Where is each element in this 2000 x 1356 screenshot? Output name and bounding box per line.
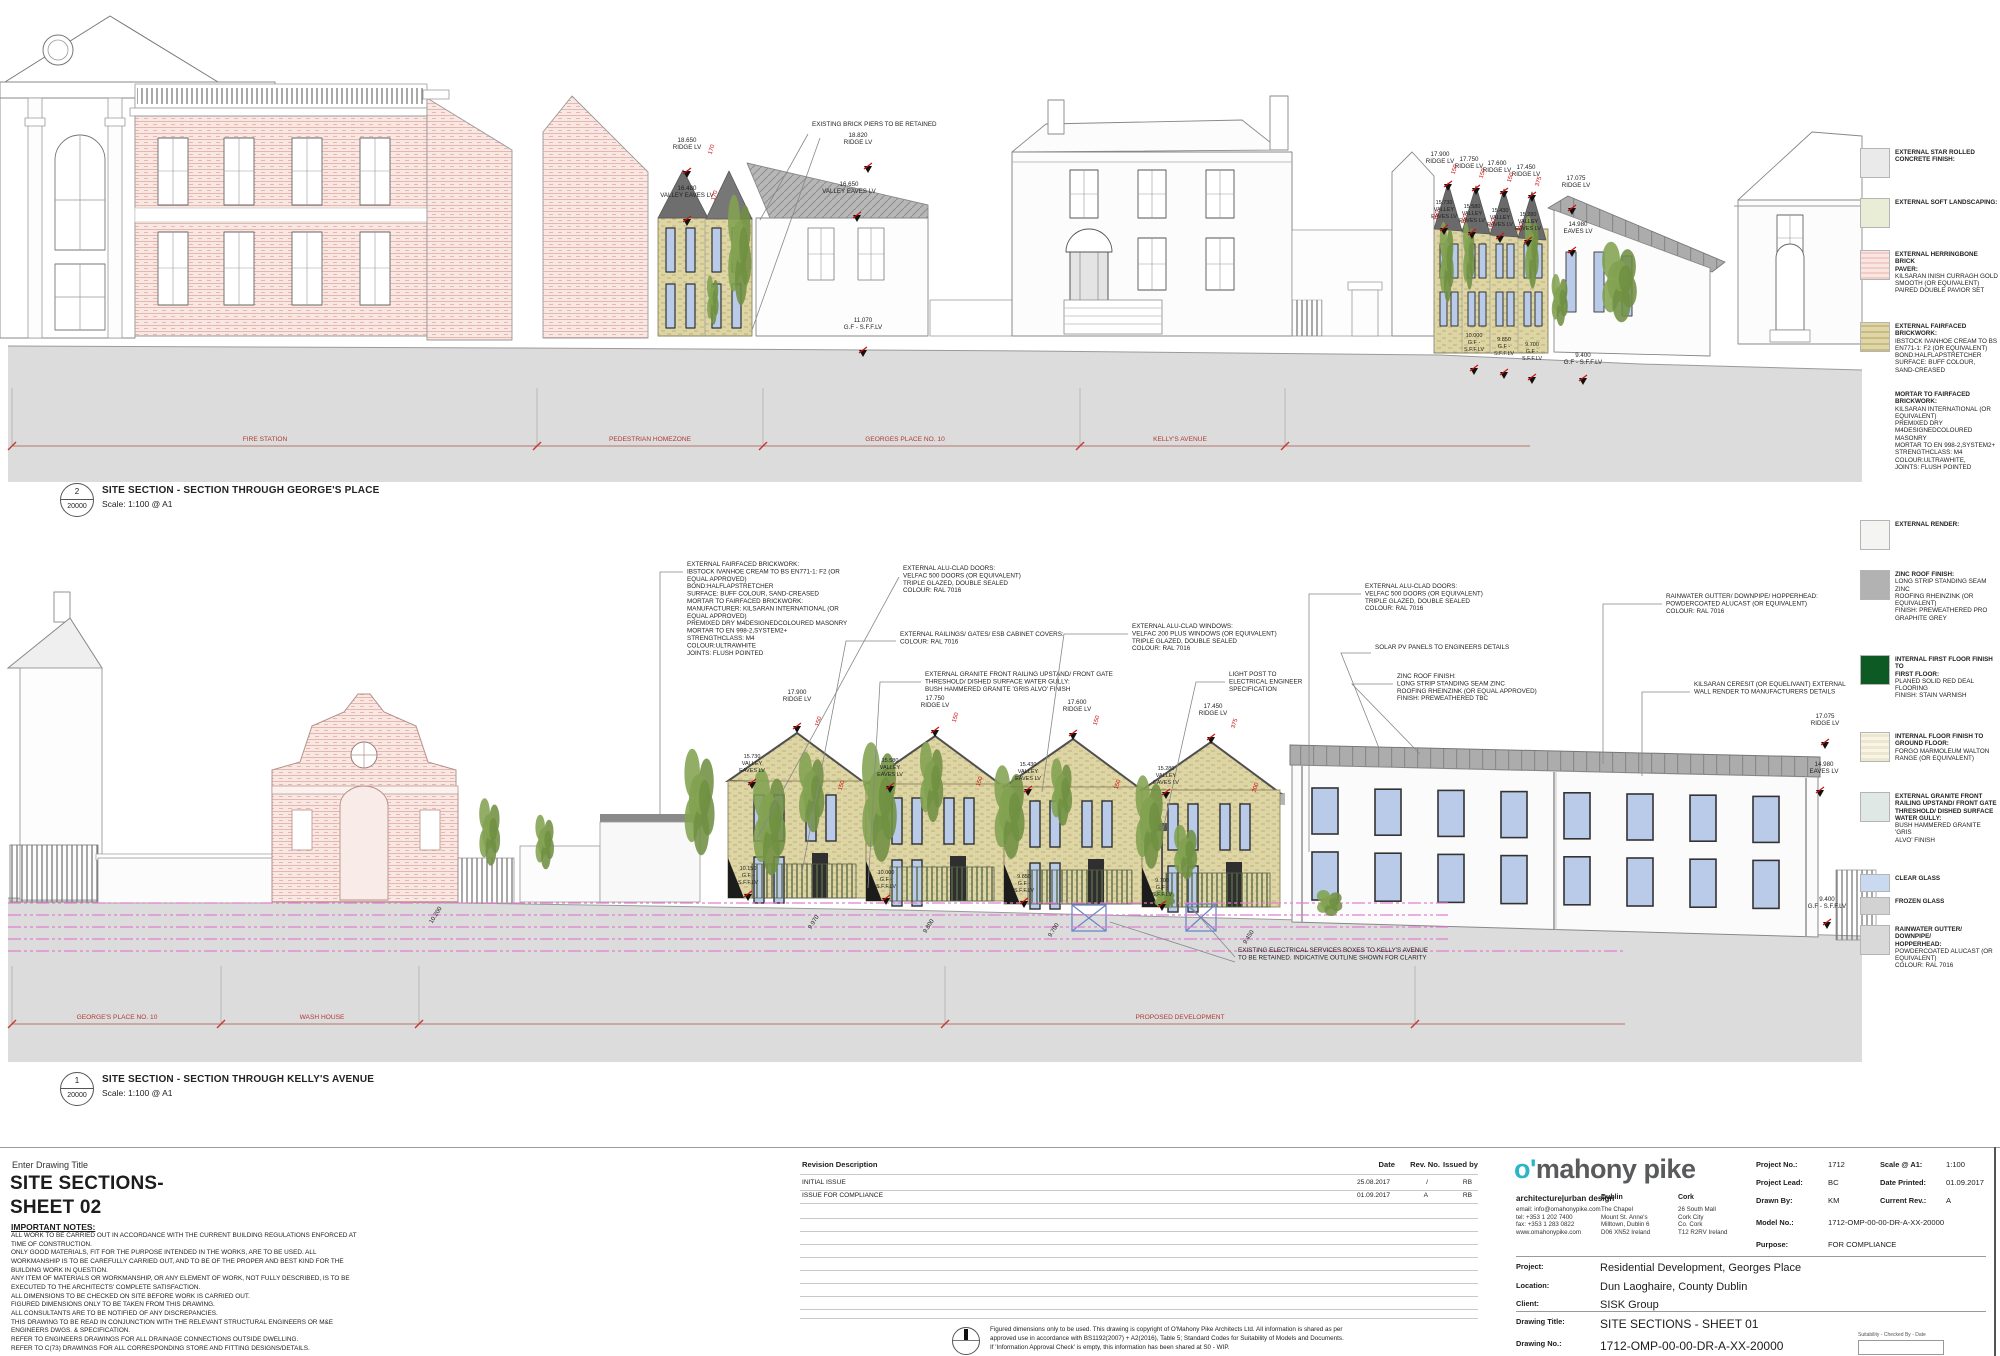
revision-rule [800,1203,1478,1204]
legend-text: EXTERNAL FAIRFACEDBRICKWORK:IBSTOCK IVAN… [1895,323,1999,374]
zone-label: GEORGE'S PLACE NO. 10 [77,1014,158,1021]
level-arrow [1444,184,1452,191]
field-label: Current Rev.: [1880,1196,1926,1205]
cork-office-address: 26 South MallCork CityCo. CorkT12 R2RV I… [1678,1206,1727,1236]
white-terrace-block [1290,745,1820,937]
field-value: Dun Laoghaire, County Dublin [1600,1281,1747,1293]
address-line: T12 R2RV Ireland [1678,1229,1727,1237]
copyright-disclaimer: Figured dimensions only to be used. This… [990,1326,1344,1352]
titleblock-rule [1516,1256,1986,1257]
legend-swatch-brickpink [1860,250,1890,280]
omahony-pike-logo: o'mahony pike [1514,1154,1695,1185]
red-dimension: 150 [1093,714,1102,726]
legend-text: ZINC ROOF FINISH:LONG STRIP STANDING SEA… [1895,571,1999,622]
field-label: Date Printed: [1880,1178,1926,1187]
red-dimension: 375 [1231,717,1240,729]
revision-rule [800,1318,1478,1319]
revision-rule [800,1231,1478,1232]
legend-text: EXTERNAL STAR ROLLEDCONCRETE FINISH: [1895,149,1999,164]
field-value: 1712 [1828,1160,1845,1169]
field-label: Scale @ A1: [1880,1160,1922,1169]
revision-cell: RB [1463,1192,1472,1199]
legend-swatch-render [1860,520,1890,550]
revision-cell: RB [1463,1179,1472,1186]
revision-rule [800,1174,1478,1175]
level-label: 17.750RIDGE LV [921,695,950,709]
disclaimer-line: approved use in accordance with BS1192(2… [990,1335,1344,1344]
note-line: WORKMANSHIP IS TO BE CAREFULLY CARRIED O… [11,1258,357,1267]
address-line: The Chapel [1601,1206,1650,1214]
section-number: 2 [61,484,93,500]
red-dimension: 170 [708,143,717,155]
level-label: 17.600RIDGE LV [1483,160,1512,174]
white-gable [1392,152,1434,336]
legend-text: RAINWATER GUTTER/ DOWNPIPE/HOPPERHEAD:PO… [1895,926,1999,970]
section-sheet-number: 20000 [61,500,93,515]
existing-gable-wall [543,96,648,338]
field-label: Client: [1516,1299,1539,1308]
field-value: BC [1828,1178,1839,1187]
note-line: BUILDING WORK IN QUESTION. [11,1267,357,1276]
firm-tagline: architecture|urban design [1516,1194,1614,1203]
enter-drawing-title: Enter Drawing Title [12,1160,88,1170]
zinc-house-top [1548,196,1725,356]
annotation-note: EXTERNAL ALU-CLAD DOORS:VELFAC 500 DOORS… [1365,583,1483,612]
section-1-caption: 1 20000 SITE SECTION - SECTION THROUGH K… [60,1072,374,1106]
revision-cell: ISSUE FOR COMPLIANCE [802,1192,883,1199]
zone-label: GEORGES PLACE NO. 10 [865,436,945,443]
level-label: 14.980EAVES LV [1809,761,1839,775]
field-value: KM [1828,1196,1839,1205]
garden-wall [930,300,1012,336]
important-notes-heading: IMPORTANT NOTES: [11,1222,95,1232]
note-line: ALL CONSULTANTS ARE TO BE NOTIFIED OF AN… [11,1310,357,1319]
address-line: fax: +353 1 283 0822 [1516,1221,1601,1229]
revision-rule [800,1257,1478,1258]
boundary-wall [520,846,600,902]
field-label: Project Lead: [1756,1178,1803,1187]
level-label: 17.750RIDGE LV [1455,156,1484,170]
revision-rule [800,1190,1478,1191]
revision-cell: A [1424,1192,1428,1199]
note-line: ALL DIMENSIONS TO BE CHECKED ON SITE BEF… [11,1293,357,1302]
level-arrow [931,730,939,737]
legend-swatch-landscaping [1860,198,1890,228]
legend-swatch-bricktan [1860,322,1890,352]
note-line: ONLY GOOD MATERIALS, FIT FOR THE PURPOSE… [11,1249,357,1258]
dublin-office-address: The ChapelMount St. Anne'sMilltown, Dubl… [1601,1206,1650,1236]
section-2-caption: 2 20000 SITE SECTION - SECTION THROUGH G… [60,483,380,517]
note-line: FIGURED DIMENSIONS ONLY TO BE TAKEN FROM… [11,1301,357,1310]
field-value: FOR COMPLIANCE [1828,1240,1896,1249]
level-label: 9.400G.F - S.F.F.LV [1564,352,1603,366]
legend-text: MORTAR TO FAIRFACEDBRICKWORK:KILSARAN IN… [1895,391,1999,471]
legend-text: INTERNAL FIRST FLOOR FINISH TOFIRST FLOO… [1895,656,1999,700]
north-symbol-line [953,1340,979,1341]
level-label: 17.450RIDGE LV [1199,703,1228,717]
section-number: 1 [61,1073,93,1089]
important-notes: ALL WORK TO BE CARRIED OUT IN ACCORDANCE… [11,1232,357,1353]
revision-cell: Rev. No. [1410,1160,1440,1169]
level-arrow [882,898,890,905]
field-label: Project No.: [1756,1160,1797,1169]
field-value: A [1946,1196,1951,1205]
revision-cell: INITIAL ISSUE [802,1179,846,1186]
revision-rule [800,1283,1478,1284]
leader-line [1341,653,1379,748]
sheet-title: SITE SECTIONS-SHEET 02 [10,1172,164,1220]
suitability-label: Suitability - Checked By - Date [1858,1332,1926,1338]
address-line: tel: +353 1 202 7400 [1516,1214,1601,1222]
leader-line [1603,604,1662,764]
sections-drawing: 18.650RIDGE LV16.480VALLEY EAVES LV18.82… [0,0,2000,1356]
sheet-edge [1994,1147,1996,1356]
level-label: 18.820RIDGE LV [844,132,873,146]
address-line: D06 XN52 Ireland [1601,1229,1650,1237]
level-arrow [1823,922,1831,929]
red-dimension: 150 [952,711,961,723]
left-existing-house [8,592,274,903]
disclaimer-line: If 'Information Approval Check' is empty… [990,1344,1344,1353]
legend-swatch-gutter [1860,925,1890,955]
zone-label: WASH HOUSE [300,1014,345,1021]
zone-label: PEDESTRIAN HOMEZONE [609,436,692,443]
revision-rule [800,1218,1478,1219]
field-value: 01.09.2017 [1946,1178,1984,1187]
field-value: 1:100 [1946,1160,1965,1169]
section-1-drawing [8,592,1876,1062]
georgian-house-no10 [1012,96,1392,336]
annotation-note: EXISTING BRICK PIERS TO BE RETAINED [812,121,937,128]
level-arrow [1020,901,1028,908]
note-line: EXECUTED TO THE ARCHITECTS' COMPLETE SAT… [11,1284,357,1293]
section-marker: 1 20000 [60,1072,94,1106]
garage [600,822,700,902]
section-scale: Scale: 1:100 @ A1 [102,499,380,509]
legend-text: EXTERNAL SOFT LANDSCAPING: [1895,199,1999,206]
level-label: 17.600RIDGE LV [1063,699,1092,713]
address-line: 26 South Mall [1678,1206,1727,1214]
legend-swatch-marmoleum [1860,732,1890,762]
revision-cell: Revision Description [802,1160,878,1169]
level-label: 17.075RIDGE LV [1811,713,1840,727]
address-line: Co. Cork [1678,1221,1727,1229]
revision-cell: 01.09.2017 [1357,1192,1390,1199]
zone-label: KELLY'S AVENUE [1153,436,1207,443]
level-label: 18.650RIDGE LV [673,137,702,151]
level-label: 17.900RIDGE LV [783,689,812,703]
section-title: SITE SECTION - SECTION THROUGH KELLY'S A… [102,1074,374,1085]
field-label: Model No.: [1756,1218,1794,1227]
legend-text: EXTERNAL GRANITE FRONTRAILING UPSTAND/ F… [1895,793,1999,844]
legend-swatch-frozenglass [1860,897,1890,915]
legend-swatch-concrete [1860,148,1890,178]
cork-office-heading: Cork [1678,1194,1694,1201]
legend-text: CLEAR GLASS [1895,875,1999,882]
legend-swatch-zinc [1860,570,1890,600]
disclaimer-line: Figured dimensions only to be used. This… [990,1326,1344,1335]
materials-legend: EXTERNAL STAR ROLLEDCONCRETE FINISH:EXTE… [1858,0,2000,1000]
field-label: Drawing No.: [1516,1339,1562,1348]
dublin-office-heading: Dublin [1601,1194,1623,1201]
fire-station [0,16,512,340]
field-value: SITE SECTIONS - SHEET 01 [1600,1317,1758,1331]
firm-contact: email: info@omahonypike.comtel: +353 1 2… [1516,1206,1601,1236]
section-sheet-number: 20000 [61,1089,93,1104]
ground-band-top [8,346,1862,482]
field-label: Drawn By: [1756,1196,1793,1205]
right-existing-house-top [1734,132,1862,344]
section-2-drawing [0,16,1862,482]
field-value: 1712-OMP-00-00-DR-A-XX-20000 [1600,1339,1783,1353]
address-line: email: info@omahonypike.com [1516,1206,1601,1214]
annotation-note: EXISTING ELECTRICAL SERVICES BOXES TO KE… [1238,947,1428,961]
legend-text: INTERNAL FLOOR FINISH TOGROUND FLOOR:FOR… [1895,733,1999,762]
annotation-note: EXTERNAL FAIRFACED BRICKWORK:IBSTOCK IVA… [687,561,848,657]
annotation-note: EXTERNAL RAILINGS/ GATES/ ESB CABINET CO… [900,631,1064,645]
annotation-note: LIGHT POST TOELECTRICAL ENGINEERSPECIFIC… [1229,671,1303,693]
level-arrow [1069,733,1077,740]
leader-line [660,572,683,815]
legend-swatch-clearglass [1860,874,1890,892]
note-line: REFER TO ENGINEERS DRAWINGS FOR ALL DRAI… [11,1336,357,1345]
wash-house [272,694,458,902]
note-line: ENGINEERS DWGS. & SPECIFICATION. [11,1327,357,1336]
annotation-note: KILSARAN CERESIT (OR EQUELIVANT) EXTERNA… [1694,681,1846,695]
address-line: Milltown, Dublin 6 [1601,1221,1650,1229]
drawing-sheet: 18.650RIDGE LV16.480VALLEY EAVES LV18.82… [0,0,2000,1356]
annotation-note: SOLAR PV PANELS TO ENGINEERS DETAILS [1375,644,1509,651]
note-line: ALL WORK TO BE CARRIED OUT IN ACCORDANCE… [11,1232,357,1241]
annotation-note: ZINC ROOF FINISH:LONG STRIP STANDING SEA… [1397,673,1537,702]
level-arrow [864,166,872,173]
revision-rule [800,1296,1478,1297]
legend-swatch-granite [1860,792,1890,822]
field-value: Residential Development, Georges Place [1600,1262,1801,1274]
titleblock-rule [1516,1311,1986,1312]
level-label: 17.075RIDGE LV [1562,175,1591,189]
revision-cell: 25.08.2017 [1357,1179,1390,1186]
note-line: TIME OF CONSTRUCTION. [11,1241,357,1250]
note-line: THIS DRAWING TO BE READ IN CONJUNCTION W… [11,1319,357,1328]
legend-text: EXTERNAL RENDER: [1895,521,1999,528]
level-arrow [793,726,801,733]
annotation-note: EXTERNAL ALU-CLAD DOORS:VELFAC 500 DOORS… [903,565,1021,594]
annotation-note: RAINWATER GUTTER/ DOWNPIPE/ HOPPERHEAD:P… [1666,593,1818,615]
legend-text: EXTERNAL HERRINGBONE BRICKPAVER:KILSARAN… [1895,251,1999,295]
address-line: Mount St. Anne's [1601,1214,1650,1222]
revision-rule [800,1270,1478,1271]
legend-text: FROZEN GLASS [1895,898,1999,905]
fence [458,858,514,903]
north-symbol [952,1327,980,1355]
level-label: 16.480VALLEY EAVES LV [660,185,714,199]
level-arrow [1821,742,1829,749]
annotation-note: EXTERNAL ALU-CLAD WINDOWS:VELFAC 200 PLU… [1132,623,1277,652]
zone-label: PROPOSED DEVELOPMENT [1135,1014,1224,1021]
level-label: 17.450RIDGE LV [1512,164,1541,178]
revision-cell: Date [1379,1160,1395,1169]
suitability-box [1858,1340,1944,1355]
field-label: Location: [1516,1281,1549,1290]
address-line: www.omahonypike.com [1516,1229,1601,1237]
field-label: Drawing Title: [1516,1317,1565,1326]
field-value: SISK Group [1600,1299,1659,1311]
revision-cell: Issued by [1443,1160,1478,1169]
address-line: Cork City [1678,1214,1727,1222]
note-line: REFER TO C(73) DRAWINGS FOR ALL CORRESPO… [11,1345,357,1354]
level-label: 17.900RIDGE LV [1426,151,1455,165]
field-value: 1712-OMP-00-00-DR-A-XX-20000 [1828,1218,1944,1227]
note-line: ANY ITEM OF MATERIALS OR WORKMANSHIP, OR… [11,1275,357,1284]
legend-swatch-green [1860,655,1890,685]
zone-label: FIRE STATION [243,436,288,443]
section-title: SITE SECTION - SECTION THROUGH GEORGE'S … [102,485,380,496]
field-label: Purpose: [1756,1240,1788,1249]
titleblock-divider [0,1147,2000,1148]
revision-rule [800,1244,1478,1245]
annotation-note: EXTERNAL GRANITE FRONT RAILING UPSTAND/ … [925,671,1113,693]
revision-cell: / [1426,1179,1428,1186]
section-marker: 2 20000 [60,483,94,517]
revision-rule [800,1309,1478,1310]
section-scale: Scale: 1:100 @ A1 [102,1088,374,1098]
field-label: Project: [1516,1262,1544,1271]
